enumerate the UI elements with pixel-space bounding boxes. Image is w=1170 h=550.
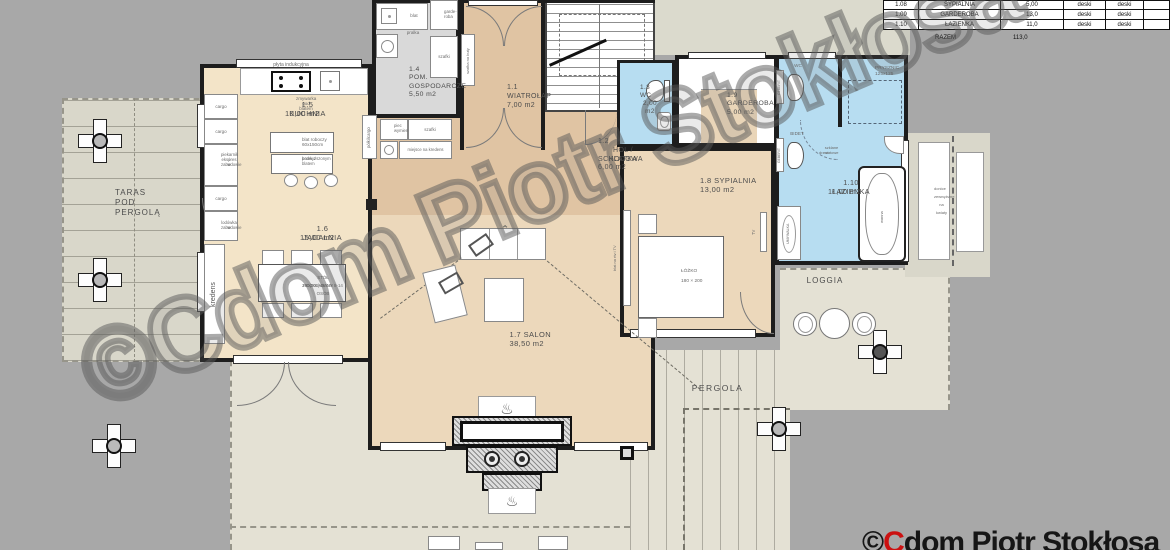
- rtv-counter: [623, 210, 631, 306]
- sideboard: kredens: [204, 244, 225, 344]
- stool-icon: [284, 174, 298, 187]
- stool-icon: [304, 176, 318, 189]
- burner-icon: [484, 451, 500, 467]
- utility-worktop: blat: [376, 3, 428, 30]
- tv-shelf: [760, 212, 767, 252]
- cabinet-cargo: cargo: [204, 119, 238, 144]
- pergola-post-icon: [78, 258, 122, 302]
- outdoor-chair-icon: [538, 536, 568, 550]
- planter-axis: [952, 136, 954, 266]
- room-hol-label: 1.2HOL / KLATKASCHODOWA6,00 m2: [548, 138, 648, 164]
- pergola-post-icon: [757, 407, 801, 451]
- legend-cell-area: 13,0: [1001, 10, 1064, 19]
- room-dining-label: 1.6 JADALNIA15,00 m2: [255, 224, 345, 233]
- pergola-post-icon: [78, 119, 122, 163]
- loggia-table-icon: [819, 308, 850, 339]
- terrace-label: TARASPODPERGOLĄ: [75, 188, 155, 208]
- legend-row: 1.10 ŁAZIENKA 11,0 deski deski: [883, 20, 1170, 30]
- sofa-seat: [484, 278, 524, 322]
- terrace-south-edge: [230, 526, 630, 528]
- outdoor-table-icon: [475, 542, 503, 550]
- legend-total-value: 113,0: [1013, 35, 1028, 41]
- toilet-icon: [787, 74, 804, 101]
- window: [788, 52, 836, 59]
- legend-cell-empty: [1144, 1, 1169, 9]
- pergola-post-icon: [92, 424, 136, 468]
- bar-counter: barek z podwyższonymblatem: [271, 154, 333, 174]
- washer-icon: [376, 34, 398, 58]
- legend-cell-empty: [1144, 10, 1169, 19]
- legend-cell-no: 1.09: [884, 10, 919, 19]
- legend-cell-area: 11,0: [1001, 20, 1064, 29]
- legend-cell-finish: deski: [1106, 20, 1144, 29]
- window: [574, 442, 648, 451]
- floor-plan: płyta indukcyjna zmywarkapod blatem carg…: [0, 0, 1170, 550]
- room-kitchen-label: 1.5 KUCHNIA10,00 m2: [240, 100, 330, 109]
- loggia-chair-icon: [852, 312, 876, 336]
- bidet-label: BIDET: [784, 131, 810, 136]
- cabinet-cargo: cargo: [204, 94, 238, 119]
- legend-cell-name: ŁAZIENKA: [919, 20, 1001, 29]
- entrance-door: [468, 0, 538, 6]
- brand-rest: dom Piotr Stokłosa: [904, 527, 1159, 550]
- legend-cell-name: SYPIALNIA: [919, 1, 1001, 9]
- legend-total-label: RAZEM: [935, 35, 956, 41]
- chair-icon: [320, 303, 342, 318]
- legend-cell-area: 5,00: [1001, 1, 1064, 9]
- cooktop-icon: [271, 71, 311, 92]
- washer-label: pralka: [398, 30, 428, 35]
- firebox: [460, 421, 564, 442]
- geberit-frame: GEBERIT: [776, 138, 784, 172]
- room-wc-label: 1.3WC2,00 m2: [620, 84, 660, 100]
- chair-icon: [262, 250, 284, 265]
- fireplace-bottom-box: ♨: [488, 488, 536, 514]
- legend-row: 1.09 GARDEROBA 13,0 deski deski: [883, 10, 1170, 20]
- loggia-label: LOGGIA: [790, 276, 860, 286]
- planter: donicezewnętrznena kwiaty: [918, 142, 950, 260]
- legend-row: 1.08 SYPIALNIA 5,00 deski deski: [883, 0, 1170, 10]
- chair-icon: [291, 250, 313, 265]
- room-bathroom-label: 1.10 ŁAZIENKA11,00 m2: [782, 178, 874, 187]
- legend-cell-finish: deski: [1064, 20, 1106, 29]
- cabinet-fridge: lodówka wzabudowie: [204, 211, 238, 241]
- sink-icon: [320, 71, 340, 91]
- post-square: [366, 199, 377, 210]
- legend-cell-finish: deski: [1106, 10, 1144, 19]
- chair-icon: [320, 250, 342, 265]
- rtv-label: blat na rtv i TV: [613, 222, 618, 294]
- pergola-post-icon: [858, 330, 902, 374]
- stool-icon: [324, 174, 338, 187]
- legend-total-row: RAZEM 113,0: [883, 30, 1170, 48]
- outdoor-chair-icon: [428, 536, 460, 550]
- fireplace: ♨ ♨: [448, 396, 576, 516]
- pergola-label: PERGOLA: [680, 383, 755, 394]
- toilet-tank: [664, 80, 670, 102]
- planter: [956, 152, 984, 252]
- wardrobe-cell: garde-roba: [430, 0, 458, 30]
- fireplace-lower: [466, 446, 558, 473]
- room-garderoba-label: 1.9GARDEROBA5,00 m2: [685, 92, 769, 109]
- nightstand: [638, 318, 657, 338]
- brand-initial: C: [883, 527, 904, 550]
- cabinet-shelves-cargo: półki/cargo: [362, 115, 377, 159]
- shower-label: PRYSZNIC125x125: [846, 66, 904, 72]
- burner-icon: [514, 451, 530, 467]
- shoe-cabinet: szafka na buty: [461, 34, 475, 86]
- legend-cell-finish: deski: [1106, 1, 1144, 9]
- legend-cell-finish: deski: [1064, 10, 1106, 19]
- washbasin-cabinet: UMYWALKA: [777, 206, 801, 260]
- flame-icon: ♨: [506, 493, 519, 509]
- nightstand: [638, 214, 657, 234]
- legend-table: 1.08 SYPIALNIA 5,00 deski deski 1.09 GAR…: [883, 0, 1170, 48]
- tv-label: TV: [752, 222, 757, 242]
- pergola-edge-v: [683, 408, 685, 550]
- window: [380, 442, 446, 451]
- terrace-west-divider: [134, 98, 135, 362]
- cabinet-szafki: szafki: [408, 119, 452, 140]
- room-bedroom-label: 1.8 SYPIALNIA13,00 m2: [640, 176, 760, 185]
- washer-icon: [380, 141, 398, 159]
- post-square: [620, 446, 634, 460]
- shower-tray: [848, 80, 902, 124]
- brand-copyright: ©: [862, 527, 883, 550]
- worktop: blat roboczy60x150cm: [270, 132, 334, 153]
- chair-icon: [262, 303, 284, 318]
- brand-logo: ©Cdom Piotr Stokłosa: [862, 527, 1170, 550]
- legend-cell-empty: [1144, 20, 1169, 29]
- boiler: piecwymiennik: [380, 119, 408, 140]
- legend-cell-no: 1.10: [884, 20, 919, 29]
- legend-cell-name: GARDEROBA: [919, 10, 1001, 19]
- sideboard-space: miejsce na kredens: [399, 141, 452, 159]
- utility-sink-icon: [381, 8, 397, 24]
- cooktop-label: płyta indukcyjna: [258, 63, 324, 69]
- cabinet-cargo: cargo: [204, 186, 238, 211]
- cabinet-oven: piekarnik iekspres wzabudowie: [204, 144, 238, 186]
- loggia-chair-icon: [793, 312, 817, 336]
- room-wiatrolap-label: 1.1WIATROŁAP7,00 m2: [472, 84, 542, 102]
- legend-cell-finish: deski: [1064, 1, 1106, 9]
- glass-door-label: szklane matowedrzwi: [794, 146, 844, 151]
- legend-cell-no: 1.08: [884, 1, 919, 9]
- bed: ŁÓŻKO180 × 200: [638, 236, 724, 318]
- chair-icon: [291, 303, 313, 318]
- window: [688, 52, 766, 59]
- wc-fixture-label: WC: [788, 63, 808, 68]
- bathroom-divider-wall: [838, 55, 842, 127]
- geberit-frame: GEBERIT: [776, 70, 784, 104]
- room-gospodarcze-label: 1.4POM.GOSPODARCZE5,50 m2: [374, 66, 444, 91]
- dining-table: STÓŁ ROZKŁADANY 8-14 OSÓB240(300)x90cm: [258, 264, 346, 302]
- room-salon-label: 1.7 SALON38,50 m2: [462, 330, 557, 339]
